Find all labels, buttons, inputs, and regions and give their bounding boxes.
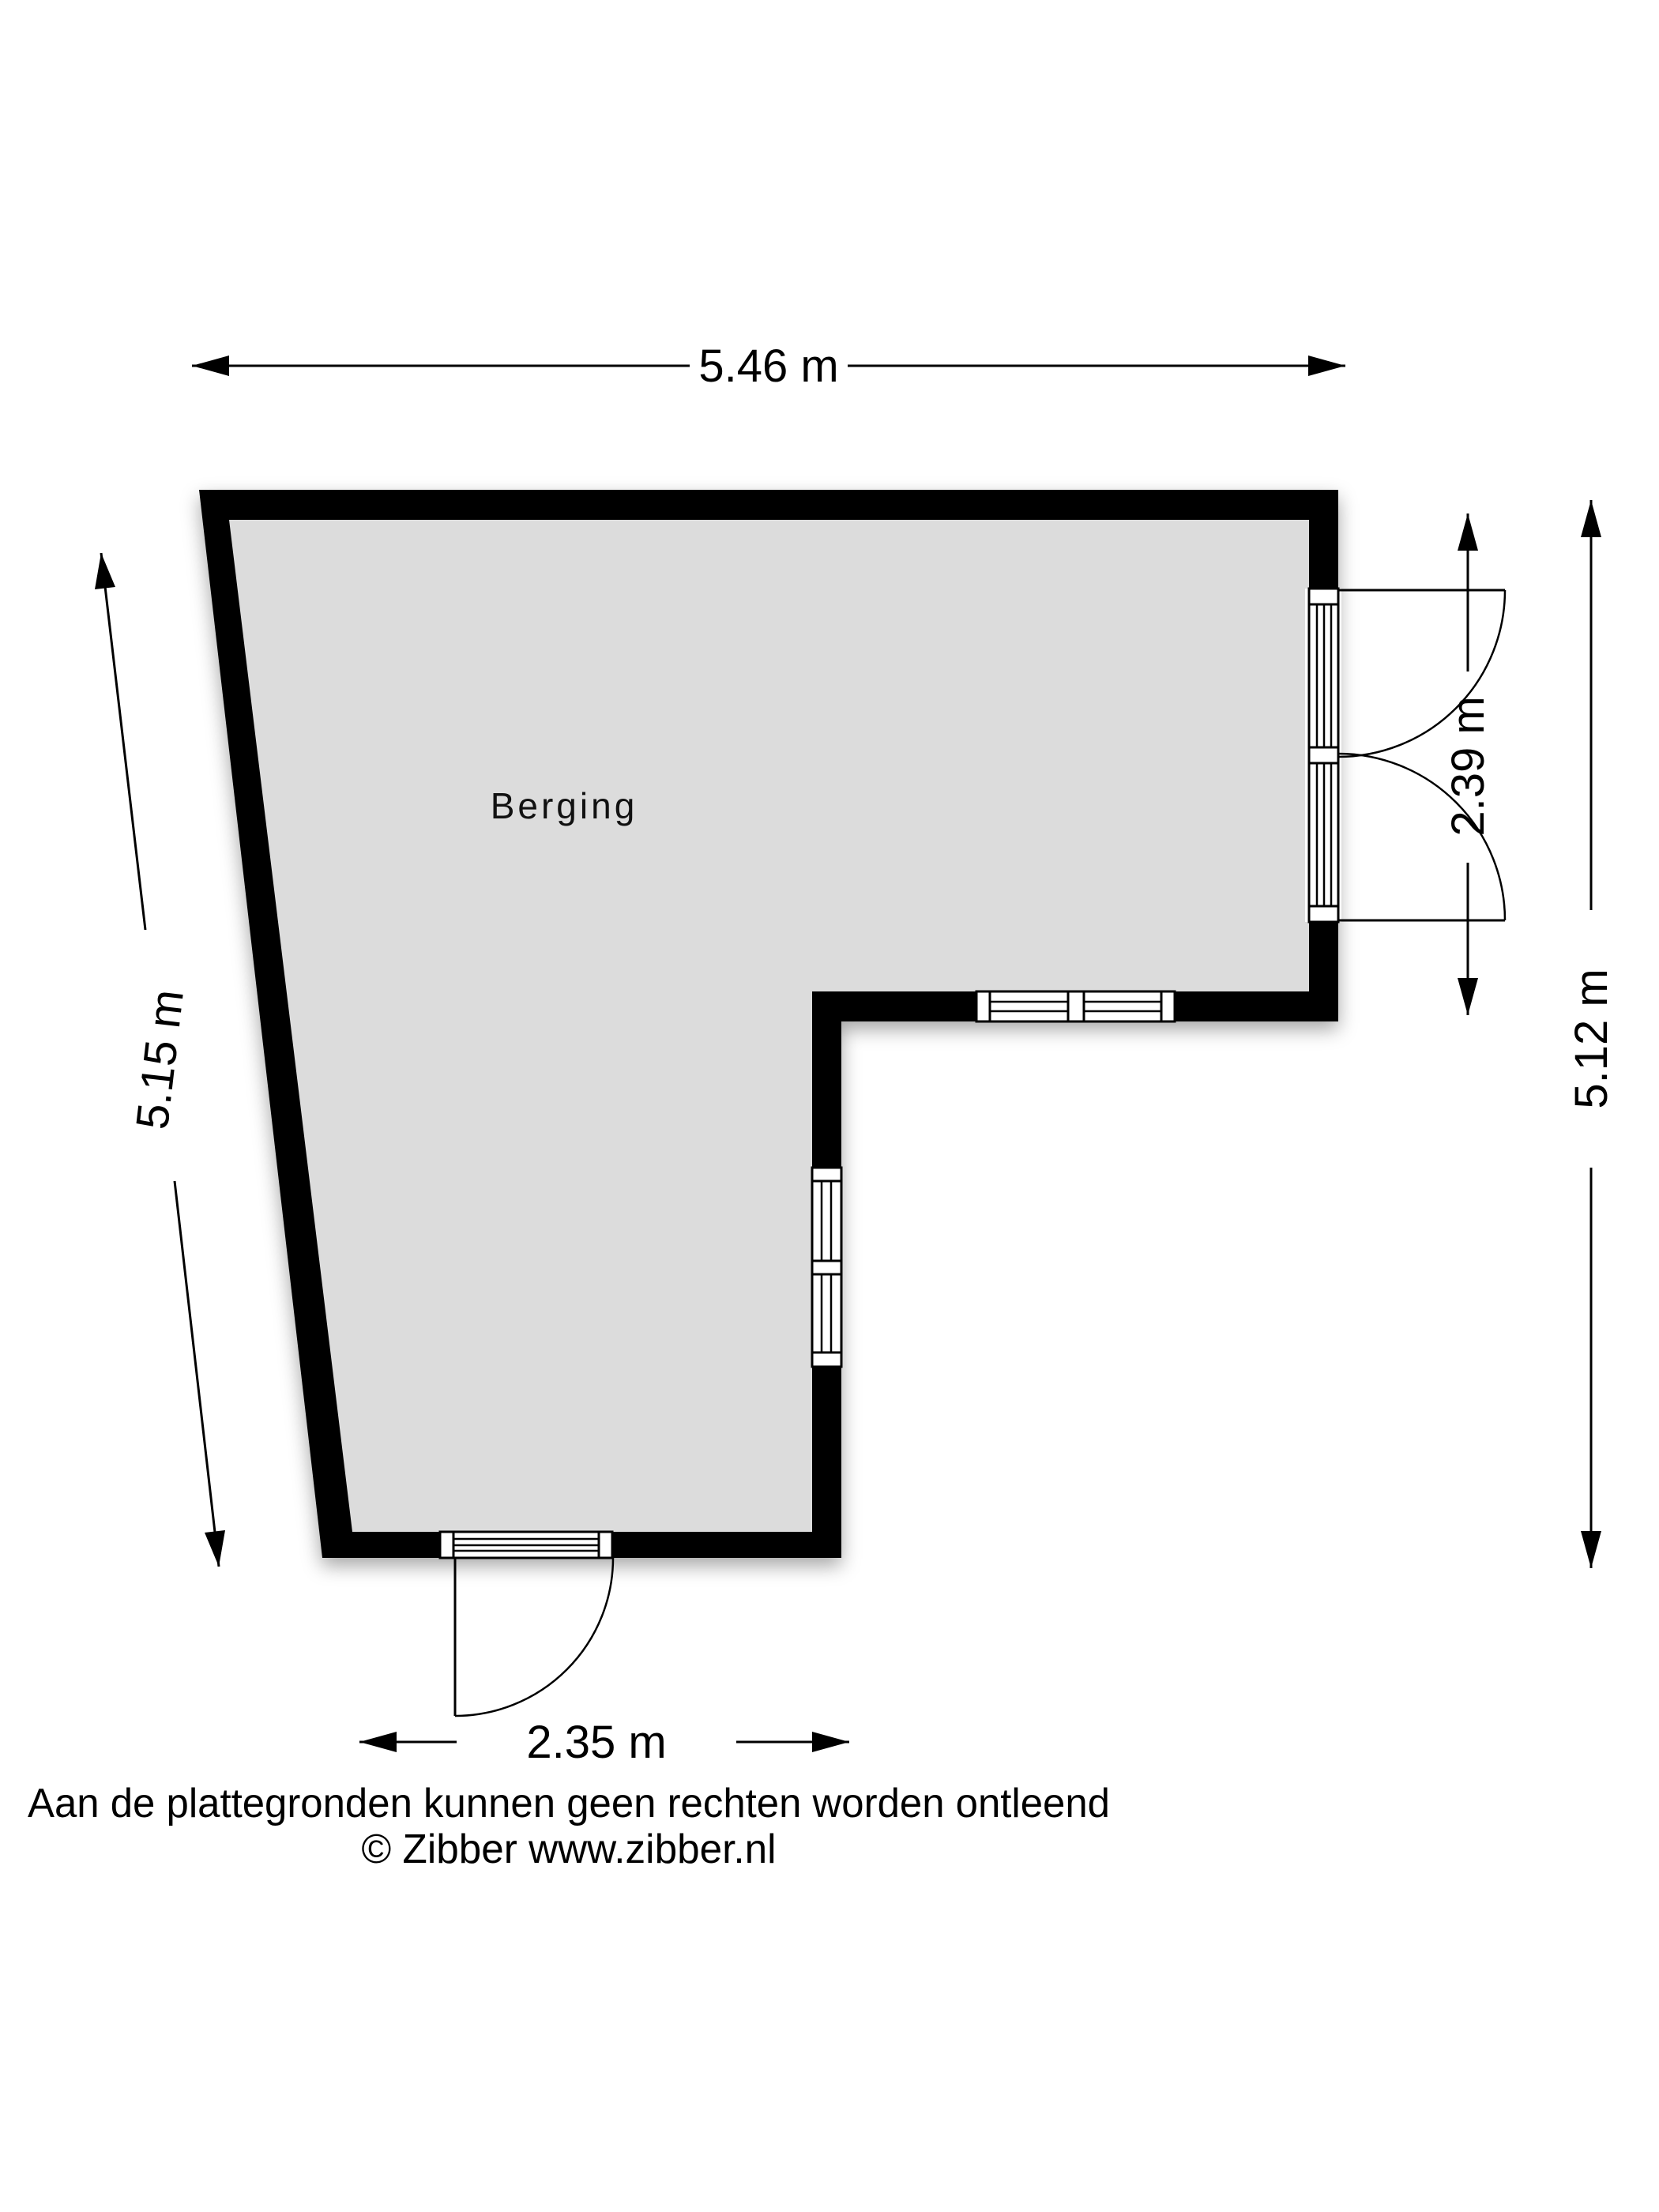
building [199,490,1338,1558]
footer-copyright: © Zibber www.zibber.nl [362,1826,777,1872]
dimension-label-top: 5.46 m [698,340,838,392]
dimension-left: 5.15 m [95,553,225,1567]
footer-disclaimer: Aan de plattegronden kunnen geen rechten… [28,1781,1110,1826]
door-swing-bottom-wall [455,1558,613,1716]
room-label: Berging [491,785,638,826]
footer: Aan de plattegronden kunnen geen rechten… [28,1781,1110,1872]
dimension-bottom: 2.35 m [359,1717,849,1768]
dimension-label-right-outer: 5.12 m [1566,969,1617,1108]
dimension-right-inner: 2.39 m [1443,513,1494,1015]
room-floor [199,490,1338,1558]
dimension-label-right-inner: 2.39 m [1443,696,1494,836]
dimension-right-outer: 5.12 m [1566,500,1617,1568]
dimension-label-left: 5.15 m [126,987,194,1132]
floor-plan-canvas: 5.46 m 5.15 m 2.39 m 5.12 m 2.35 m Bergi… [0,0,1659,2212]
dimension-label-bottom: 2.35 m [526,1717,666,1768]
window-step-wall [976,991,1175,1021]
dimension-top: 5.46 m [192,340,1345,392]
window-step-vertical-wall [812,1168,841,1367]
door-bottom [440,1532,613,1716]
